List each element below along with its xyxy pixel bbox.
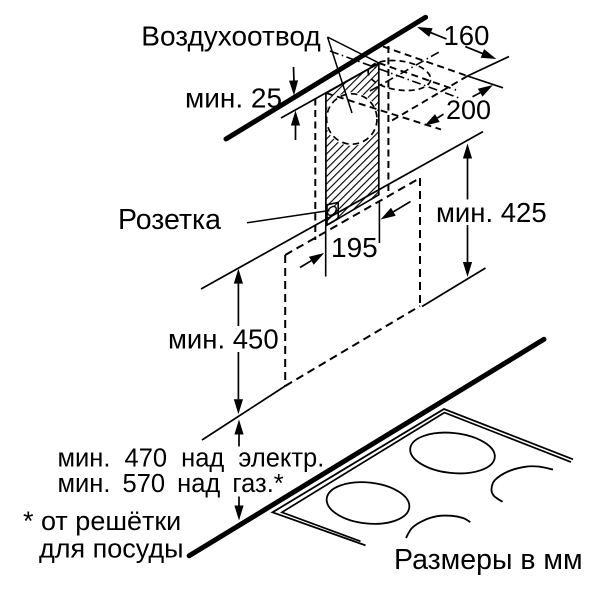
svg-text:Размеры в мм: Размеры в мм (394, 544, 583, 576)
svg-text:* от решётки: * от решётки (23, 506, 181, 536)
svg-text:Воздухоотвод: Воздухоотвод (141, 21, 320, 52)
svg-text:мин. 25: мин. 25 (185, 83, 282, 114)
svg-text:мин. 470 над электр.: мин. 470 над электр. (58, 445, 325, 473)
svg-text:195: 195 (331, 232, 378, 263)
svg-text:для посуды: для посуды (39, 534, 184, 564)
svg-text:200: 200 (446, 95, 491, 125)
svg-text:Розетка: Розетка (118, 204, 221, 236)
svg-text:мин. 425: мин. 425 (436, 197, 547, 228)
svg-text:160: 160 (444, 20, 490, 51)
svg-text:мин. 450: мин. 450 (168, 324, 279, 355)
svg-text:мин. 570 над газ.*: мин. 570 над газ.* (58, 470, 284, 498)
